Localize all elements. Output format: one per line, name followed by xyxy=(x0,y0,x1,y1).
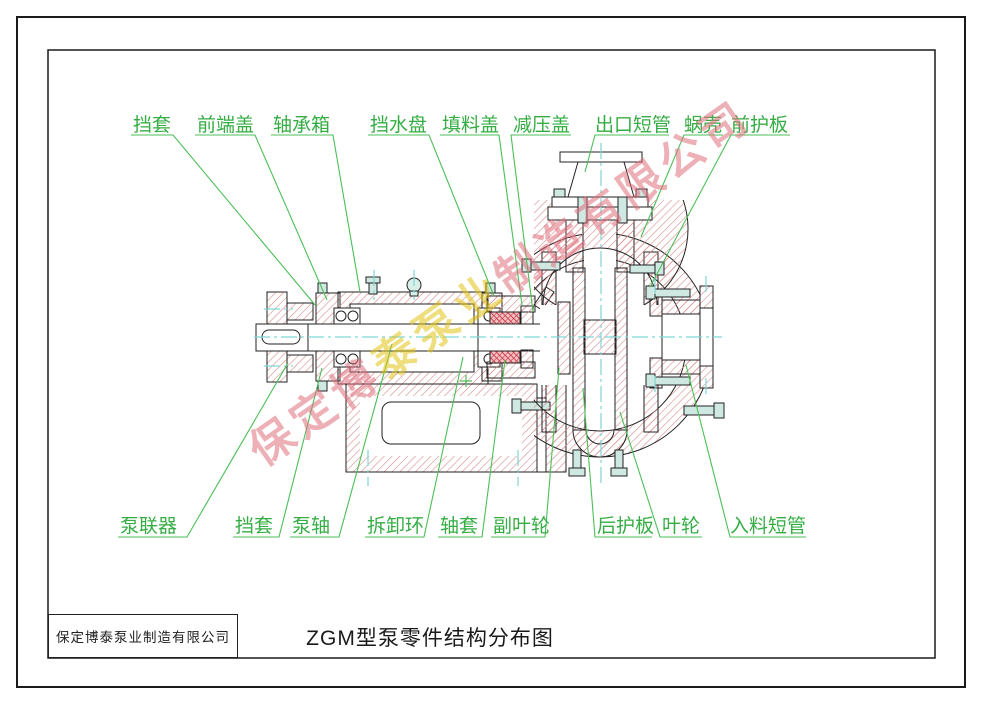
company-title-box: 保定博泰泵业制造有限公司 xyxy=(48,614,238,658)
label-ruliaoduanguan: 入料短管 xyxy=(730,515,806,537)
label-benglianqi: 泵联器 xyxy=(120,515,177,537)
label-chukouduanguan: 出口短管 xyxy=(595,114,671,136)
label-houhuban: 后护板 xyxy=(597,515,654,537)
label-chaixiehuan: 拆卸环 xyxy=(367,515,424,537)
label-dangshuipan: 挡水盘 xyxy=(370,114,427,136)
pedestal-shape xyxy=(346,380,566,472)
pump-section-drawing: 挡套 前端盖 轴承箱 挡水盘 填料盖 减压盖 出口短管 蜗壳 前护板 泵联器 挡… xyxy=(0,0,982,703)
company-name: 保定博泰泵业制造有限公司 xyxy=(56,626,230,646)
outlet-pipe-shape xyxy=(548,152,652,223)
label-fuyelun: 副叶轮 xyxy=(493,515,550,537)
label-yelun: 叶轮 xyxy=(662,515,700,537)
label-jianyagai: 减压盖 xyxy=(513,114,570,136)
label-dangtao-top: 挡套 xyxy=(133,114,171,136)
label-woke: 蜗壳 xyxy=(684,114,722,136)
pump-assembly xyxy=(256,141,724,476)
drawing-sheet: 挡套 前端盖 轴承箱 挡水盘 填料盖 减压盖 出口短管 蜗壳 前护板 泵联器 挡… xyxy=(0,0,982,703)
label-zhoutao: 轴套 xyxy=(440,515,478,537)
label-tianliaogai: 填料盖 xyxy=(442,114,499,136)
drawing-title: ZGM型泵零件结构分布图 xyxy=(300,620,560,654)
label-zhouchengxiang: 轴承箱 xyxy=(273,114,330,136)
label-dangtao-bottom: 挡套 xyxy=(235,515,273,537)
label-qianhuban: 前护板 xyxy=(731,114,788,136)
label-qianduangai: 前端盖 xyxy=(197,114,254,136)
label-bengzhou: 泵轴 xyxy=(292,515,330,537)
